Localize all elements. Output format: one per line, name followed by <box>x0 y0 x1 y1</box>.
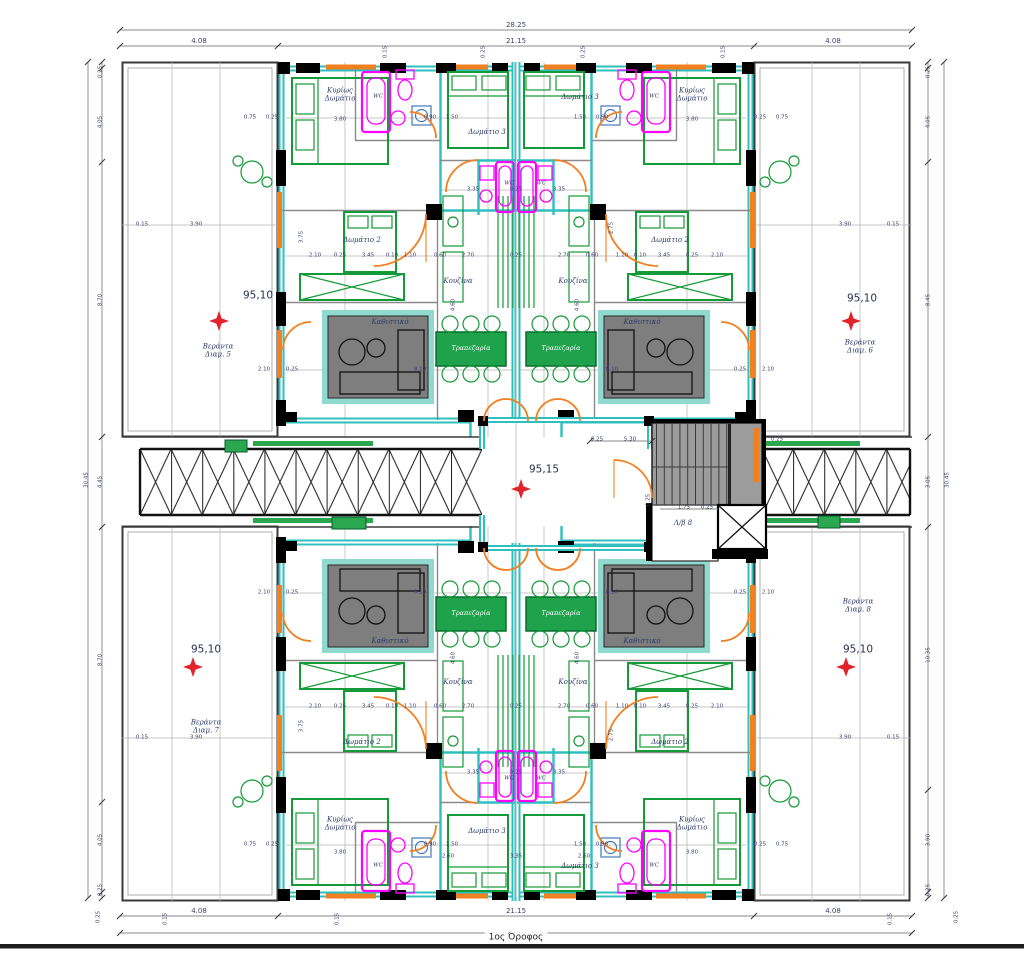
floor-plan-canvas <box>0 0 1024 968</box>
floor-plan-sheet: 1ος Όροφος 95,1095,1095,1095,1095,15Κυρί… <box>0 0 1024 968</box>
sheet-border <box>0 944 1024 949</box>
